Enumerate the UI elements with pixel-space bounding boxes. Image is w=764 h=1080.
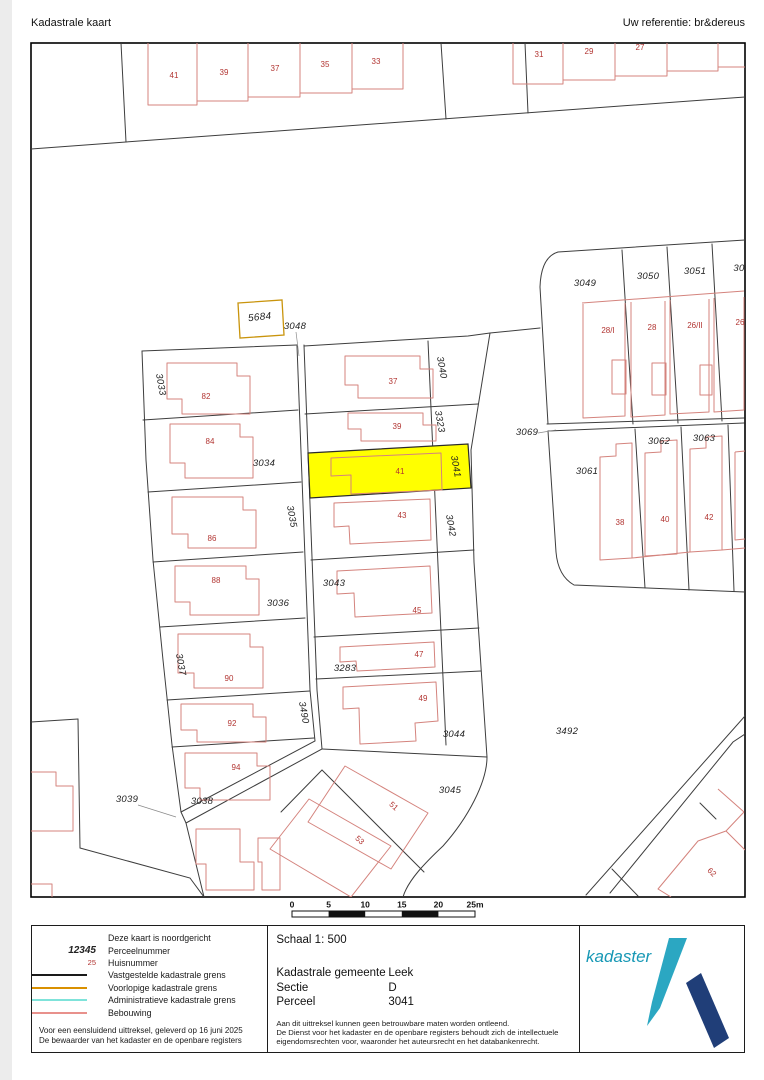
house-number-41: 41 bbox=[396, 467, 405, 476]
legend-row-parcelnumber: 12345 Perceelnummer bbox=[32, 944, 267, 956]
house-number-38: 38 bbox=[616, 518, 625, 527]
house-number-42: 42 bbox=[705, 513, 714, 522]
legend-parcel-sample: 12345 bbox=[68, 945, 96, 956]
legend-row-administrative-boundary: Administratieve kadastrale grens bbox=[32, 994, 267, 1006]
house-number-37: 37 bbox=[389, 377, 398, 386]
scale-tick-20: 20 bbox=[434, 900, 444, 910]
cadastral-extract-page: Kadastrale kaart Uw referentie: br&dereu… bbox=[0, 0, 764, 1080]
legend-row-provisional-boundary: Voorlopige kadastrale grens bbox=[32, 982, 267, 994]
parcel-label-3061: 3061 bbox=[576, 466, 598, 477]
house-number-28/I: 28/I bbox=[601, 326, 614, 335]
kadaster-logo-beam bbox=[686, 973, 729, 1048]
house-number-31: 31 bbox=[535, 50, 544, 59]
legend-line-buildings bbox=[32, 1012, 87, 1014]
parcel-label-3044: 3044 bbox=[443, 729, 465, 740]
house-number-39: 39 bbox=[220, 68, 229, 77]
sectie-value: D bbox=[388, 981, 396, 996]
house-number-40: 40 bbox=[661, 515, 670, 524]
legend-line-administrative bbox=[32, 999, 87, 1001]
legend-row-north: Deze kaart is noordgericht bbox=[32, 932, 267, 944]
cadastral-map: 5684304830333034303530363037349030383039… bbox=[0, 0, 764, 930]
house-number-28: 28 bbox=[648, 323, 657, 332]
legend: Deze kaart is noordgericht 12345 Perceel… bbox=[32, 926, 267, 1052]
parcel-label-3039: 3039 bbox=[116, 794, 139, 805]
legend-north-note: Deze kaart is noordgericht bbox=[108, 933, 211, 943]
house-number-41: 41 bbox=[170, 71, 179, 80]
scale-tick-5: 5 bbox=[326, 900, 331, 910]
legend-row-housenumber: 25 Huisnummer bbox=[32, 957, 267, 969]
house-number-84: 84 bbox=[206, 437, 215, 446]
parcel-label-3051: 3051 bbox=[684, 266, 706, 277]
house-number-49: 49 bbox=[419, 694, 428, 703]
perceel-value: 3041 bbox=[388, 995, 414, 1010]
parcel-label-3492: 3492 bbox=[556, 726, 579, 737]
house-number-33: 33 bbox=[372, 57, 381, 66]
legend-footnote-2: De bewaarder van het kadaster en de open… bbox=[39, 1036, 267, 1046]
parcel-label-3048: 3048 bbox=[284, 321, 307, 332]
parcel-label-3069: 3069 bbox=[516, 427, 539, 438]
house-number-37: 37 bbox=[271, 64, 280, 73]
house-number-35: 35 bbox=[321, 60, 330, 69]
scale-bar-segment bbox=[402, 911, 439, 917]
legend-row-established-boundary: Vastgestelde kadastrale grens bbox=[32, 969, 267, 981]
info-row-perceel: Perceel 3041 bbox=[276, 995, 573, 1010]
house-number-47: 47 bbox=[415, 650, 424, 659]
parcel-label-3063: 3063 bbox=[693, 433, 716, 444]
parcel-label-3036: 3036 bbox=[267, 598, 290, 609]
gemeente-value: Leek bbox=[388, 966, 413, 981]
kadaster-logo: kadaster bbox=[579, 926, 744, 1052]
house-number-39: 39 bbox=[393, 422, 402, 431]
house-number-43: 43 bbox=[398, 511, 407, 520]
footer-info-box: Deze kaart is noordgericht 12345 Perceel… bbox=[31, 925, 745, 1053]
house-number-29: 29 bbox=[585, 47, 594, 56]
parcel-label-3283: 3283 bbox=[334, 663, 357, 674]
highlighted-parcel-3041 bbox=[308, 444, 471, 498]
extract-info: Schaal 1: 500 Kadastrale gemeente Leek S… bbox=[267, 926, 579, 1052]
parcel-label-3034: 3034 bbox=[253, 458, 275, 469]
legend-footnotes: Voor een eensluidend uittreksel, gelever… bbox=[32, 1026, 267, 1052]
disclaimer: Aan dit uittreksel kunnen geen betrouwba… bbox=[276, 1019, 573, 1046]
kadaster-logo-text: kadaster bbox=[586, 947, 653, 966]
legend-line-provisional bbox=[32, 987, 87, 989]
house-number-26: 26 bbox=[736, 318, 745, 327]
house-number-94: 94 bbox=[232, 763, 241, 772]
scale-text: Schaal 1: 500 bbox=[276, 934, 573, 946]
info-row-sectie: Sectie D bbox=[276, 981, 573, 996]
scale-bar: 0510152025m bbox=[290, 900, 484, 918]
scale-tick-15: 15 bbox=[397, 900, 407, 910]
parcel-label-3038: 3038 bbox=[191, 796, 214, 807]
house-number-88: 88 bbox=[212, 576, 221, 585]
kadaster-logo-nib bbox=[647, 938, 687, 1026]
legend-line-established bbox=[32, 974, 87, 976]
parcel-label-3045: 3045 bbox=[439, 785, 462, 796]
house-number-92: 92 bbox=[228, 719, 237, 728]
scale-tick-10: 10 bbox=[360, 900, 370, 910]
parcel-label-3062: 3062 bbox=[648, 436, 671, 447]
legend-footnote-1: Voor een eensluidend uittreksel, gelever… bbox=[39, 1026, 267, 1036]
house-number-90: 90 bbox=[225, 674, 234, 683]
house-number-82: 82 bbox=[202, 392, 211, 401]
scale-bar-segment bbox=[329, 911, 366, 917]
scale-tick-0: 0 bbox=[290, 900, 295, 910]
house-number-27: 27 bbox=[636, 43, 645, 52]
scale-bar-track bbox=[292, 911, 475, 917]
parcel-label-3050: 3050 bbox=[637, 271, 660, 282]
info-row-gemeente: Kadastrale gemeente Leek bbox=[276, 966, 573, 981]
legend-row-buildings: Bebouwing bbox=[32, 1006, 267, 1018]
house-number-26/II: 26/II bbox=[687, 321, 703, 330]
house-number-86: 86 bbox=[208, 534, 217, 543]
house-number-45: 45 bbox=[413, 606, 422, 615]
legend-house-sample: 25 bbox=[88, 958, 96, 967]
parcel-label-30: 30 bbox=[733, 263, 745, 274]
parcel-label-3043: 3043 bbox=[323, 578, 346, 589]
scale-tick-25m: 25m bbox=[466, 900, 483, 910]
parcel-label-3049: 3049 bbox=[574, 278, 597, 289]
